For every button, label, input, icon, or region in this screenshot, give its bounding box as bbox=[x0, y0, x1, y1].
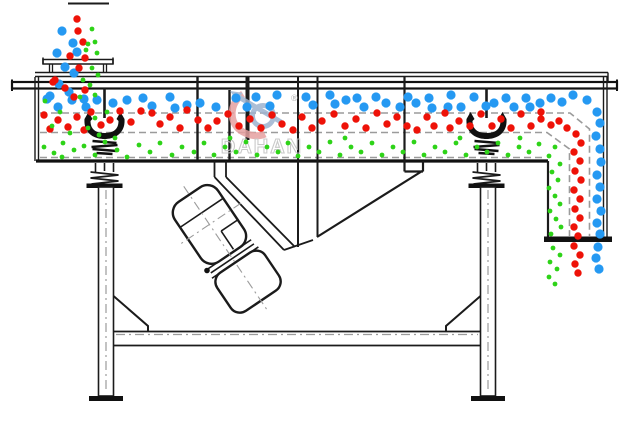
blue-large-particle bbox=[359, 102, 368, 111]
red-medium-particle bbox=[204, 124, 211, 131]
blue-large-particle bbox=[593, 242, 602, 251]
blue-large-particle bbox=[568, 90, 577, 99]
red-medium-particle bbox=[576, 214, 583, 221]
red-medium-particle bbox=[54, 116, 61, 123]
blue-large-particle bbox=[596, 157, 605, 166]
green-fine-particle bbox=[349, 145, 354, 150]
red-medium-particle bbox=[574, 232, 581, 239]
green-fine-particle bbox=[88, 83, 93, 88]
green-fine-particle bbox=[286, 141, 291, 146]
red-medium-particle bbox=[257, 124, 264, 131]
red-medium-particle bbox=[441, 109, 448, 116]
red-medium-particle bbox=[166, 113, 173, 120]
green-fine-particle bbox=[93, 153, 98, 158]
green-fine-particle bbox=[96, 73, 101, 78]
green-fine-particle bbox=[550, 170, 555, 175]
green-fine-particle bbox=[548, 260, 553, 265]
green-fine-particle bbox=[454, 141, 459, 146]
red-medium-particle bbox=[373, 109, 380, 116]
red-medium-particle bbox=[106, 116, 113, 123]
green-fine-particle bbox=[192, 150, 197, 155]
green-fine-particle bbox=[555, 267, 560, 272]
green-fine-particle bbox=[58, 110, 63, 115]
blue-large-particle bbox=[211, 102, 220, 111]
green-fine-particle bbox=[212, 153, 217, 158]
green-fine-particle bbox=[78, 95, 83, 100]
diagram-canvas: ® DAHAN bbox=[0, 0, 638, 428]
green-fine-particle bbox=[202, 141, 207, 146]
blue-large-particle bbox=[591, 253, 600, 262]
red-medium-particle bbox=[430, 122, 437, 129]
blue-large-particle bbox=[371, 92, 380, 101]
blue-large-particle bbox=[525, 102, 534, 111]
green-fine-particle bbox=[244, 140, 249, 145]
green-fine-particle bbox=[97, 133, 102, 138]
green-fine-particle bbox=[554, 217, 559, 222]
green-fine-particle bbox=[170, 153, 175, 158]
green-fine-particle bbox=[93, 93, 98, 98]
green-fine-particle bbox=[527, 150, 532, 155]
blue-large-particle bbox=[52, 48, 61, 57]
red-medium-particle bbox=[235, 122, 242, 129]
red-medium-particle bbox=[455, 117, 462, 124]
blue-large-particle bbox=[170, 103, 179, 112]
green-fine-particle bbox=[125, 155, 130, 160]
right-gusset bbox=[446, 296, 481, 332]
green-fine-particle bbox=[60, 155, 65, 160]
green-fine-particle bbox=[115, 148, 120, 153]
green-fine-particle bbox=[72, 148, 77, 153]
green-fine-particle bbox=[547, 275, 552, 280]
left-gusset bbox=[114, 296, 149, 332]
green-fine-particle bbox=[422, 153, 427, 158]
green-fine-particle bbox=[255, 153, 260, 158]
red-medium-particle bbox=[75, 64, 82, 71]
red-medium-particle bbox=[555, 117, 562, 124]
green-fine-particle bbox=[103, 140, 108, 145]
green-fine-particle bbox=[158, 141, 163, 146]
cross-beam bbox=[114, 332, 480, 346]
blue-large-particle bbox=[265, 101, 274, 110]
green-fine-particle bbox=[506, 153, 511, 158]
red-medium-particle bbox=[87, 108, 94, 115]
green-fine-particle bbox=[401, 150, 406, 155]
red-medium-particle bbox=[116, 107, 123, 114]
blue-large-particle bbox=[595, 229, 604, 238]
blue-large-particle bbox=[411, 98, 420, 107]
red-medium-particle bbox=[64, 123, 71, 130]
red-medium-particle bbox=[73, 113, 80, 120]
vibration-motor bbox=[152, 165, 298, 330]
vibrating-screen-diagram: ® DAHAN bbox=[0, 0, 638, 428]
green-fine-particle bbox=[338, 153, 343, 158]
green-fine-particle bbox=[547, 186, 552, 191]
red-medium-particle bbox=[127, 118, 134, 125]
blue-large-particle bbox=[489, 98, 498, 107]
red-medium-particle bbox=[73, 15, 80, 22]
red-medium-particle bbox=[81, 86, 88, 93]
red-medium-particle bbox=[563, 124, 570, 131]
green-fine-particle bbox=[265, 145, 270, 150]
green-fine-particle bbox=[95, 51, 100, 56]
red-medium-particle bbox=[318, 117, 325, 124]
red-medium-particle bbox=[570, 242, 577, 249]
green-fine-particle bbox=[42, 145, 47, 150]
red-medium-particle bbox=[570, 223, 577, 230]
blue-large-particle bbox=[122, 95, 131, 104]
red-medium-particle bbox=[571, 205, 578, 212]
blue-large-particle bbox=[395, 102, 404, 111]
blue-large-particle bbox=[596, 206, 605, 215]
red-medium-particle bbox=[66, 52, 73, 59]
green-fine-particle bbox=[50, 124, 55, 129]
top-cover bbox=[35, 73, 608, 83]
green-fine-particle bbox=[61, 141, 66, 146]
red-medium-particle bbox=[517, 110, 524, 117]
blue-large-particle bbox=[427, 103, 436, 112]
blue-large-particle bbox=[301, 92, 310, 101]
blue-large-particle bbox=[521, 93, 530, 102]
red-medium-particle bbox=[246, 115, 253, 122]
green-fine-particle bbox=[464, 153, 469, 158]
red-medium-particle bbox=[577, 139, 584, 146]
red-medium-particle bbox=[576, 157, 583, 164]
red-medium-particle bbox=[268, 111, 275, 118]
blue-large-particle bbox=[330, 99, 339, 108]
green-fine-particle bbox=[296, 154, 301, 159]
red-medium-particle bbox=[194, 116, 201, 123]
red-medium-particle bbox=[547, 121, 554, 128]
green-fine-particle bbox=[558, 162, 563, 167]
red-medium-particle bbox=[74, 27, 81, 34]
blue-large-particle bbox=[592, 218, 601, 227]
green-fine-particle bbox=[68, 131, 73, 136]
upper-screen-deck-dashed bbox=[40, 113, 590, 236]
blue-large-particle bbox=[592, 170, 601, 179]
green-fine-particle bbox=[433, 145, 438, 150]
red-medium-particle bbox=[466, 122, 473, 129]
brand-name-outline-text: DAHAN bbox=[221, 136, 303, 158]
red-medium-particle bbox=[224, 110, 231, 117]
red-medium-particle bbox=[393, 113, 400, 120]
blue-large-particle bbox=[595, 118, 604, 127]
red-medium-particle bbox=[70, 93, 77, 100]
green-fine-particle bbox=[86, 126, 91, 131]
green-fine-particle bbox=[496, 141, 501, 146]
red-medium-particle bbox=[97, 121, 104, 128]
green-fine-particle bbox=[443, 150, 448, 155]
left-suspension bbox=[84, 88, 124, 188]
green-fine-particle bbox=[559, 225, 564, 230]
left-stub bbox=[215, 161, 227, 177]
red-medium-particle bbox=[289, 126, 296, 133]
green-fine-particle bbox=[553, 145, 558, 150]
red-medium-particle bbox=[507, 124, 514, 131]
green-fine-particle bbox=[380, 153, 385, 158]
green-fine-particle bbox=[485, 150, 490, 155]
green-fine-particle bbox=[223, 145, 228, 150]
blue-large-particle bbox=[231, 93, 240, 102]
red-medium-particle bbox=[537, 108, 544, 115]
green-fine-particle bbox=[537, 142, 542, 147]
blue-large-particle bbox=[57, 26, 66, 35]
green-fine-particle bbox=[558, 202, 563, 207]
green-fine-particle bbox=[234, 150, 239, 155]
blue-large-particle bbox=[481, 101, 490, 110]
motor-bolt bbox=[204, 268, 210, 274]
green-fine-particle bbox=[228, 136, 233, 141]
red-medium-particle bbox=[423, 113, 430, 120]
blue-large-particle bbox=[446, 90, 455, 99]
green-fine-particle bbox=[90, 66, 95, 71]
red-medium-particle bbox=[49, 78, 56, 85]
green-fine-particle bbox=[82, 144, 87, 149]
red-medium-particle bbox=[61, 84, 68, 91]
blue-large-particle bbox=[68, 38, 77, 47]
red-medium-particle bbox=[403, 122, 410, 129]
green-fine-particle bbox=[52, 151, 57, 156]
blue-large-particle bbox=[272, 90, 281, 99]
green-fine-particle bbox=[343, 136, 348, 141]
red-medium-particle bbox=[352, 115, 359, 122]
blue-large-particle bbox=[60, 62, 69, 71]
red-medium-particle bbox=[79, 38, 86, 45]
red-medium-particle bbox=[527, 122, 534, 129]
green-fine-particle bbox=[549, 232, 554, 237]
green-fine-particle bbox=[93, 116, 98, 121]
green-fine-particle bbox=[317, 150, 322, 155]
red-medium-particle bbox=[477, 110, 484, 117]
green-fine-particle bbox=[547, 154, 552, 159]
green-fine-particle bbox=[370, 141, 375, 146]
red-medium-particle bbox=[40, 111, 47, 118]
red-medium-particle bbox=[497, 115, 504, 122]
green-fine-particle bbox=[86, 42, 91, 47]
blue-large-particle bbox=[469, 92, 478, 101]
blue-large-particle bbox=[595, 182, 604, 191]
blue-large-particle bbox=[165, 92, 174, 101]
particles-layer bbox=[40, 15, 605, 286]
top-rail bbox=[12, 82, 617, 89]
red-medium-particle bbox=[413, 126, 420, 133]
blue-large-particle bbox=[308, 100, 317, 109]
red-medium-particle bbox=[570, 186, 577, 193]
green-fine-particle bbox=[412, 140, 417, 145]
green-fine-particle bbox=[558, 253, 563, 258]
green-fine-particle bbox=[43, 99, 48, 104]
blue-large-particle bbox=[501, 93, 510, 102]
green-fine-particle bbox=[113, 136, 118, 141]
blue-large-particle bbox=[108, 98, 117, 107]
green-fine-particle bbox=[548, 209, 553, 214]
red-medium-particle bbox=[183, 106, 190, 113]
blue-large-particle bbox=[591, 131, 600, 140]
green-fine-particle bbox=[148, 150, 153, 155]
red-medium-particle bbox=[537, 115, 544, 122]
blue-large-particle bbox=[509, 102, 518, 111]
red-medium-particle bbox=[156, 120, 163, 127]
right-leg bbox=[471, 187, 505, 401]
left-leg bbox=[89, 187, 123, 401]
blue-large-particle bbox=[147, 101, 156, 110]
green-fine-particle bbox=[553, 194, 558, 199]
red-medium-particle bbox=[81, 54, 88, 61]
red-medium-particle bbox=[446, 124, 453, 131]
green-fine-particle bbox=[105, 110, 110, 115]
green-fine-particle bbox=[81, 78, 86, 83]
red-medium-particle bbox=[572, 130, 579, 137]
green-fine-particle bbox=[517, 145, 522, 150]
green-fine-particle bbox=[391, 145, 396, 150]
red-medium-particle bbox=[577, 176, 584, 183]
red-medium-particle bbox=[341, 122, 348, 129]
red-medium-particle bbox=[308, 124, 315, 131]
red-medium-particle bbox=[574, 269, 581, 276]
red-medium-particle bbox=[278, 120, 285, 127]
red-medium-particle bbox=[383, 120, 390, 127]
blue-large-particle bbox=[456, 102, 465, 111]
green-fine-particle bbox=[84, 48, 89, 53]
blue-large-particle bbox=[403, 92, 412, 101]
red-medium-particle bbox=[213, 117, 220, 124]
red-medium-particle bbox=[298, 113, 305, 120]
blue-large-particle bbox=[381, 98, 390, 107]
blue-large-particle bbox=[195, 98, 204, 107]
green-fine-particle bbox=[307, 145, 312, 150]
blue-large-particle bbox=[72, 47, 81, 56]
blue-large-particle bbox=[424, 93, 433, 102]
green-fine-particle bbox=[276, 150, 281, 155]
red-medium-particle bbox=[571, 260, 578, 267]
right-mount-beam bbox=[317, 161, 423, 237]
blue-large-particle bbox=[138, 93, 147, 102]
green-fine-particle bbox=[556, 178, 561, 183]
blue-large-particle bbox=[595, 144, 604, 153]
red-medium-particle bbox=[576, 251, 583, 258]
green-fine-particle bbox=[553, 282, 558, 287]
red-medium-particle bbox=[137, 107, 144, 114]
blue-large-particle bbox=[341, 95, 350, 104]
green-fine-particle bbox=[475, 145, 480, 150]
green-fine-particle bbox=[551, 246, 556, 251]
blue-large-particle bbox=[352, 93, 361, 102]
red-medium-particle bbox=[148, 109, 155, 116]
red-medium-particle bbox=[576, 195, 583, 202]
green-fine-particle bbox=[180, 145, 185, 150]
red-medium-particle bbox=[362, 124, 369, 131]
blue-large-particle bbox=[594, 264, 603, 273]
green-fine-particle bbox=[137, 143, 142, 148]
blue-large-particle bbox=[546, 93, 555, 102]
registered-mark: ® bbox=[291, 93, 300, 103]
blue-large-particle bbox=[592, 194, 601, 203]
green-fine-particle bbox=[328, 140, 333, 145]
inlet-flange bbox=[43, 60, 113, 65]
blue-large-particle bbox=[535, 98, 544, 107]
green-fine-particle bbox=[518, 136, 523, 141]
green-fine-particle bbox=[93, 40, 98, 45]
red-medium-particle bbox=[571, 167, 578, 174]
red-medium-particle bbox=[570, 148, 577, 155]
green-fine-particle bbox=[90, 27, 95, 32]
green-fine-particle bbox=[359, 150, 364, 155]
blue-large-particle bbox=[251, 92, 260, 101]
red-medium-particle bbox=[330, 110, 337, 117]
blue-large-particle bbox=[557, 97, 566, 106]
red-medium-particle bbox=[176, 124, 183, 131]
blue-large-particle bbox=[242, 102, 251, 111]
blue-large-particle bbox=[592, 107, 601, 116]
green-fine-particle bbox=[458, 136, 463, 141]
blue-large-particle bbox=[325, 90, 334, 99]
blue-large-particle bbox=[582, 95, 591, 104]
red-medium-particle bbox=[488, 122, 495, 129]
